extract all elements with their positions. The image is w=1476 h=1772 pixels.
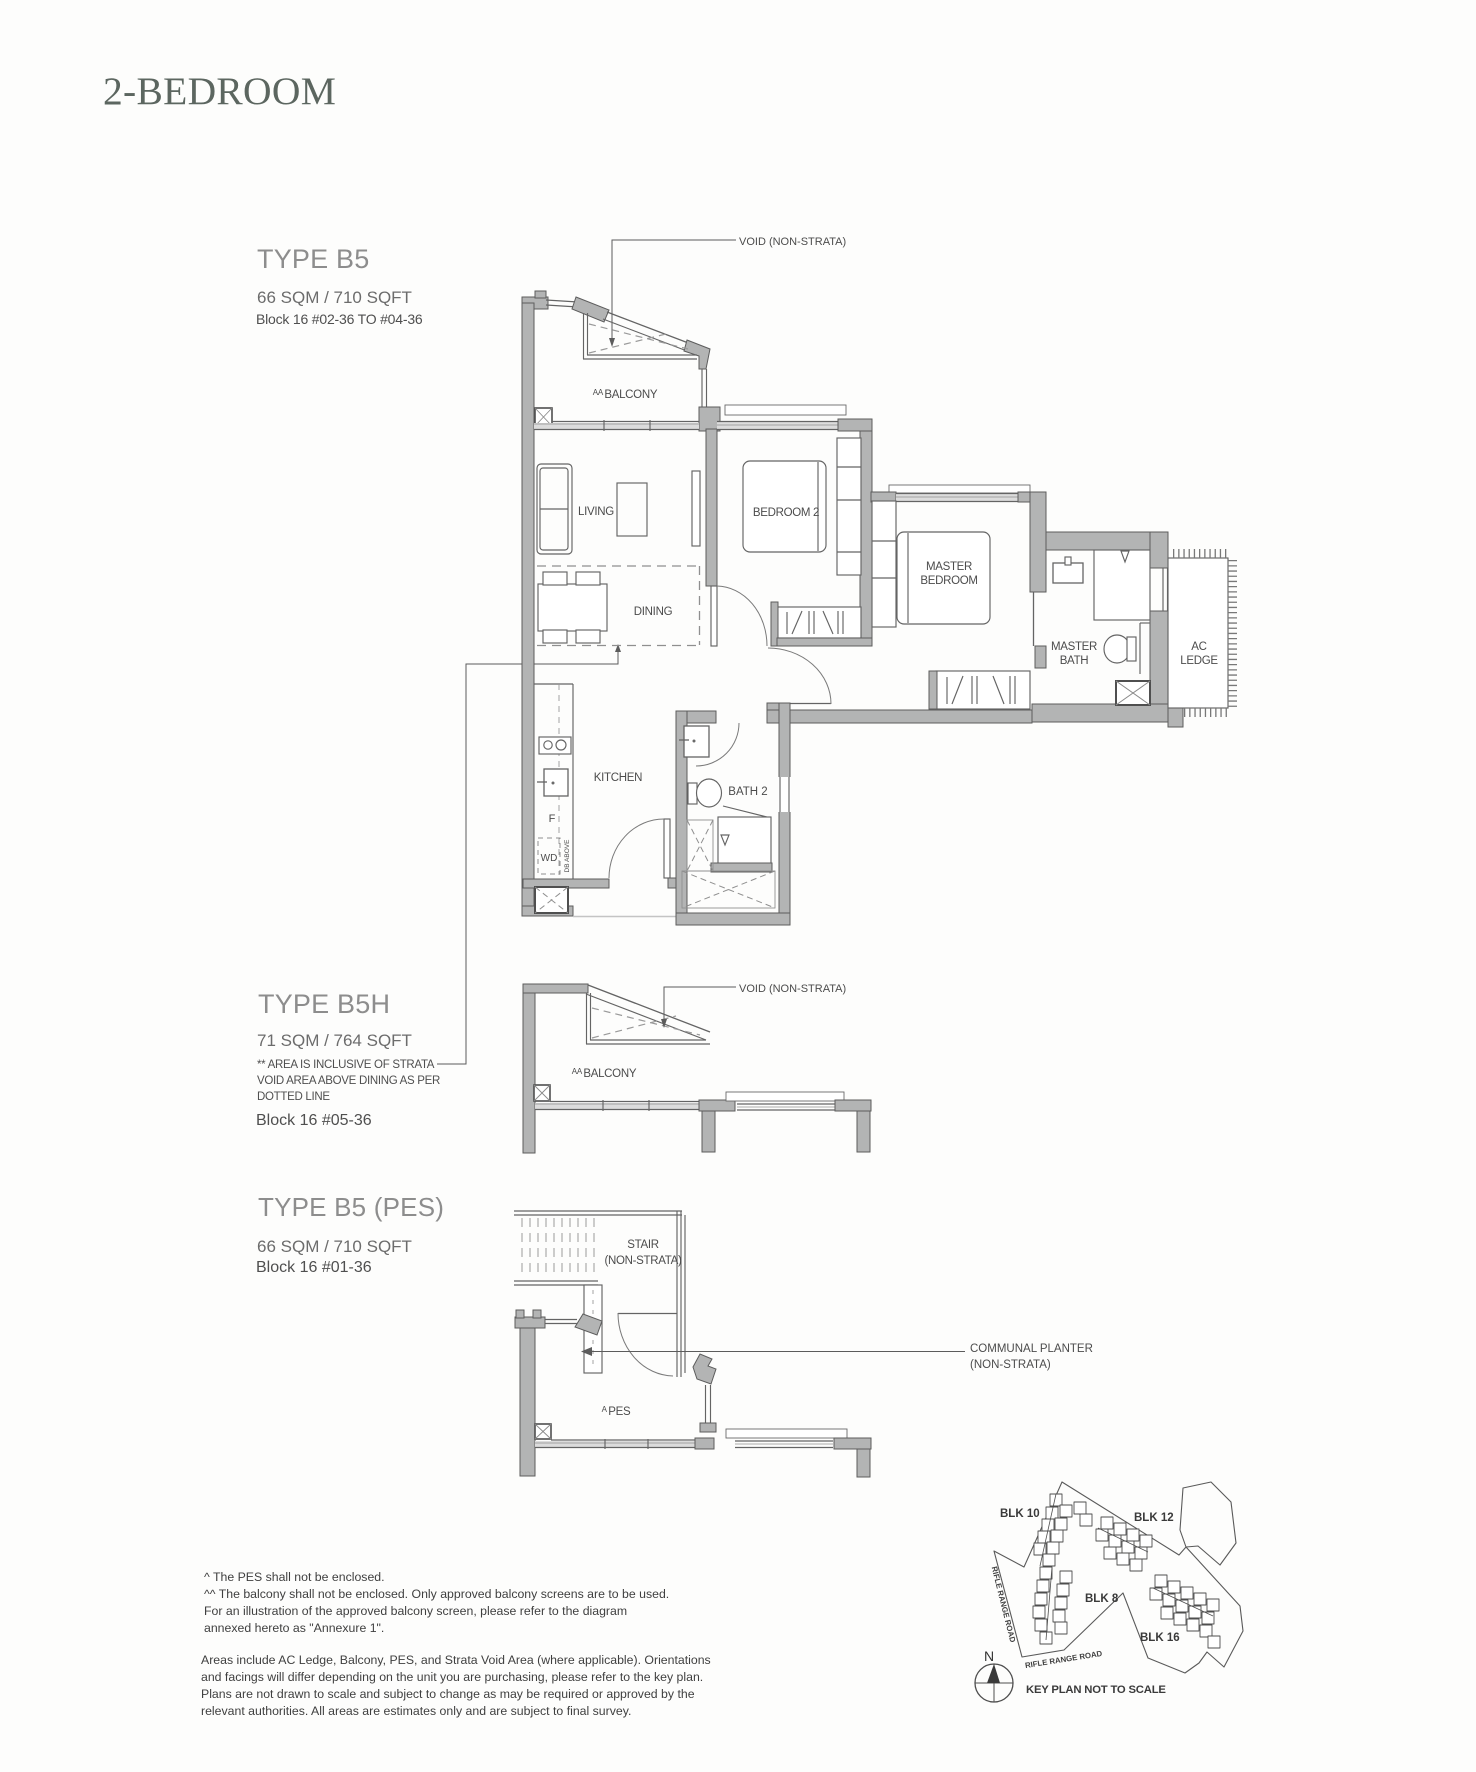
svg-text:(NON-STRATA): (NON-STRATA) — [604, 1255, 682, 1267]
svg-text:66 SQM / 710 SQFT: 66 SQM / 710 SQFT — [257, 288, 412, 307]
svg-text:Block 16 #02-36 TO #04-36: Block 16 #02-36 TO #04-36 — [256, 311, 423, 327]
svg-text:BATH 2: BATH 2 — [728, 786, 767, 798]
svg-text:71 SQM / 764 SQFT: 71 SQM / 764 SQFT — [257, 1031, 412, 1050]
svg-text:LEDGE: LEDGE — [1180, 655, 1218, 667]
svg-text:66 SQM / 710 SQFT: 66 SQM / 710 SQFT — [257, 1237, 412, 1256]
svg-text:MASTER: MASTER — [1051, 641, 1097, 653]
svg-text:BLK 16: BLK 16 — [1140, 1632, 1180, 1644]
svg-text:TYPE B5H: TYPE B5H — [258, 989, 390, 1019]
svg-text:MASTER: MASTER — [926, 561, 972, 573]
svg-text:BEDROOM 2: BEDROOM 2 — [753, 507, 819, 519]
svg-text:** AREA IS INCLUSIVE OF STRAT: ** AREA IS INCLUSIVE OF STRATA — [257, 1059, 435, 1071]
svg-text:Areas include AC Ledge, Balcon: Areas include AC Ledge, Balcony, PES, an… — [201, 1653, 711, 1667]
svg-text:DOTTED LINE: DOTTED LINE — [257, 1091, 330, 1103]
svg-text:^ The PES shall not be enclos: ^ The PES shall not be enclosed. — [204, 1570, 385, 1584]
svg-text:BATH: BATH — [1060, 655, 1089, 667]
svg-text:VOID (NON-STRATA): VOID (NON-STRATA) — [739, 236, 846, 248]
svg-text:For an illustration of the app: For an illustration of the approved balc… — [204, 1604, 627, 1618]
svg-text:BEDROOM: BEDROOM — [920, 575, 977, 587]
svg-text:STAIR: STAIR — [627, 1239, 659, 1251]
svg-text:TYPE B5 (PES): TYPE B5 (PES) — [258, 1192, 444, 1222]
svg-text:AC: AC — [1191, 641, 1206, 653]
svg-text:and facings will differ depend: and facings will differ depending on the… — [201, 1670, 703, 1684]
svg-text:WD: WD — [541, 853, 558, 864]
svg-text:BLK 8: BLK 8 — [1085, 1593, 1119, 1605]
svg-text:DB ABOVE: DB ABOVE — [564, 839, 571, 873]
svg-text:VOID (NON-STRATA): VOID (NON-STRATA) — [739, 983, 846, 995]
svg-text:N: N — [984, 1648, 994, 1664]
svg-text:2-BEDROOM: 2-BEDROOM — [103, 69, 336, 113]
svg-text:^^ The balcony shall not be en: ^^ The balcony shall not be enclosed. On… — [204, 1587, 669, 1601]
svg-text:KEY PLAN NOT TO SCALE: KEY PLAN NOT TO SCALE — [1026, 1684, 1166, 1696]
svg-text:Plans are not drawn to scale a: Plans are not drawn to scale and subject… — [201, 1687, 695, 1701]
svg-text:LIVING: LIVING — [578, 506, 614, 518]
svg-text:F: F — [549, 813, 556, 825]
svg-text:Block 16 #05-36: Block 16 #05-36 — [256, 1112, 372, 1129]
svg-text:Block 16 #01-36: Block 16 #01-36 — [256, 1259, 372, 1276]
svg-text:COMMUNAL PLANTER: COMMUNAL PLANTER — [970, 1343, 1093, 1355]
svg-text:BLK 10: BLK 10 — [1000, 1508, 1040, 1520]
svg-text:(NON-STRATA): (NON-STRATA) — [970, 1359, 1051, 1371]
svg-text:TYPE B5: TYPE B5 — [257, 244, 369, 274]
svg-text:VOID AREA ABOVE DINING AS PER: VOID AREA ABOVE DINING AS PER — [257, 1075, 440, 1087]
svg-text:BLK 12: BLK 12 — [1134, 1512, 1174, 1524]
svg-text:annexed hereto as "Annexure 1": annexed hereto as "Annexure 1". — [204, 1621, 384, 1635]
svg-text:relevant authorities. All area: relevant authorities. All areas are esti… — [201, 1704, 631, 1718]
svg-text:DINING: DINING — [634, 606, 673, 618]
svg-text:KITCHEN: KITCHEN — [594, 772, 642, 784]
